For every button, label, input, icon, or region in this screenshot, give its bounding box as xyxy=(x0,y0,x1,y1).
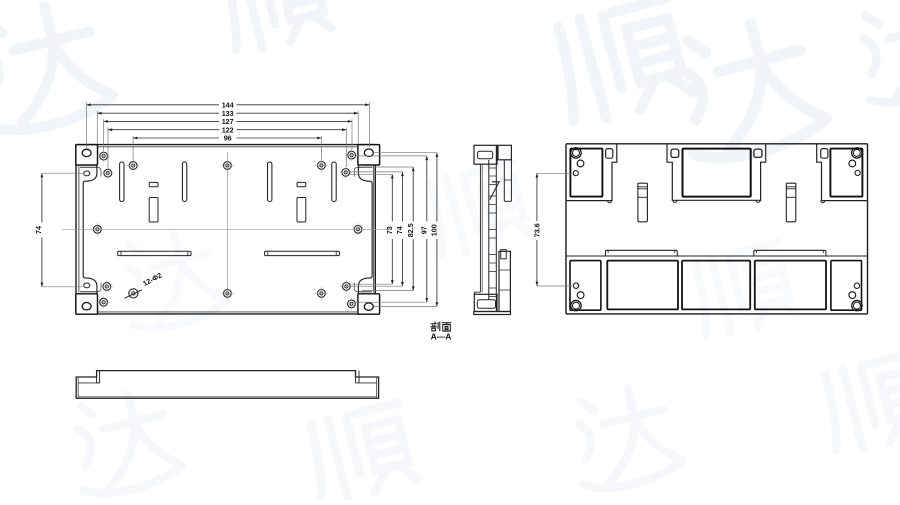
svg-text:82.5: 82.5 xyxy=(406,223,415,237)
svg-text:73: 73 xyxy=(385,226,394,234)
svg-text:97: 97 xyxy=(419,226,428,234)
svg-text:74: 74 xyxy=(395,226,404,234)
svg-text:74: 74 xyxy=(34,226,43,234)
svg-text:A—A: A—A xyxy=(431,332,452,342)
svg-text:100: 100 xyxy=(430,224,439,236)
svg-text:96: 96 xyxy=(224,134,232,143)
svg-text:73.6: 73.6 xyxy=(532,223,541,237)
